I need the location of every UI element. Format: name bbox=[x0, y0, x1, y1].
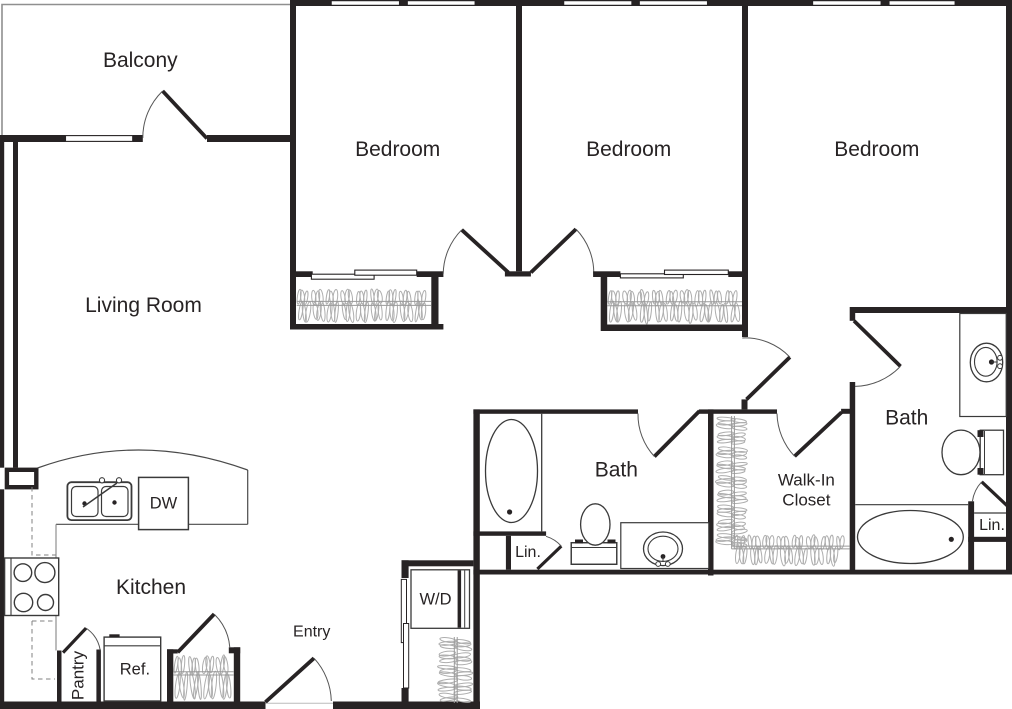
svg-text:Walk-In: Walk-In bbox=[778, 471, 835, 490]
svg-text:Lin.: Lin. bbox=[979, 517, 1005, 534]
svg-text:Bedroom: Bedroom bbox=[834, 138, 919, 161]
svg-text:Kitchen: Kitchen bbox=[116, 576, 186, 599]
svg-text:Ref.: Ref. bbox=[120, 660, 150, 678]
svg-text:Bedroom: Bedroom bbox=[355, 138, 440, 161]
svg-text:DW: DW bbox=[150, 495, 178, 513]
svg-text:Entry: Entry bbox=[293, 624, 330, 641]
svg-text:Bath: Bath bbox=[885, 407, 928, 430]
svg-text:Closet: Closet bbox=[782, 491, 830, 510]
svg-text:W/D: W/D bbox=[419, 590, 451, 608]
svg-text:Pantry: Pantry bbox=[69, 650, 88, 700]
svg-text:Lin.: Lin. bbox=[515, 544, 541, 561]
svg-text:Balcony: Balcony bbox=[103, 49, 178, 72]
svg-text:Bath: Bath bbox=[595, 459, 638, 482]
svg-text:Living Room: Living Room bbox=[85, 294, 202, 317]
svg-text:Bedroom: Bedroom bbox=[586, 138, 671, 161]
